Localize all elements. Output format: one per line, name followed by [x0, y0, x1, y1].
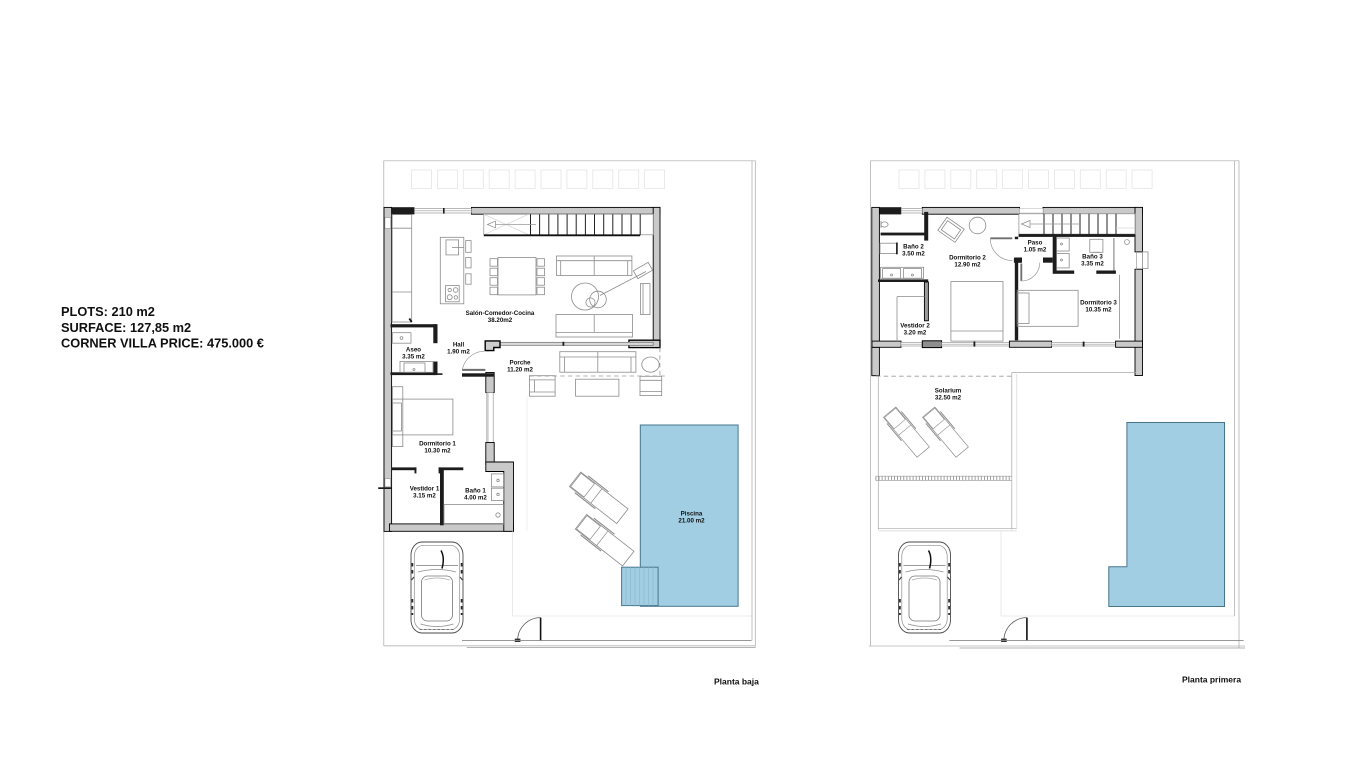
svg-text:SURFACE: 127,85 m2: SURFACE: 127,85 m2	[61, 320, 191, 335]
svg-text:Baño 3: Baño 3	[1082, 254, 1103, 261]
svg-text:Dormitorio 2: Dormitorio 2	[949, 255, 986, 262]
svg-text:3.35 m2: 3.35 m2	[402, 354, 425, 361]
svg-text:Planta baja: Planta baja	[714, 676, 759, 686]
svg-text:11.20 m2: 11.20 m2	[507, 367, 533, 374]
svg-text:1.05 m2: 1.05 m2	[1024, 247, 1047, 254]
svg-text:10.35 m2: 10.35 m2	[1085, 307, 1112, 314]
svg-text:Baño 1: Baño 1	[465, 488, 486, 495]
svg-text:3.35 m2: 3.35 m2	[1081, 261, 1104, 268]
svg-text:3.20 m2: 3.20 m2	[904, 330, 927, 337]
svg-text:12.90 m2: 12.90 m2	[954, 262, 981, 269]
svg-text:Vestidor 2: Vestidor 2	[900, 323, 930, 330]
svg-text:1.90 m2: 1.90 m2	[447, 349, 470, 356]
svg-text:38.20m2: 38.20m2	[488, 317, 513, 324]
svg-text:Solarium: Solarium	[935, 388, 962, 395]
svg-text:3.15 m2: 3.15 m2	[413, 493, 436, 500]
svg-text:Vestidor 1: Vestidor 1	[410, 486, 440, 493]
svg-text:Piscina: Piscina	[681, 511, 703, 518]
svg-text:Hall: Hall	[453, 342, 465, 349]
svg-text:Aseo: Aseo	[406, 347, 421, 354]
svg-text:Baño 2: Baño 2	[903, 244, 924, 251]
svg-text:32.50 m2: 32.50 m2	[935, 395, 962, 402]
svg-text:Dormitorio 3: Dormitorio 3	[1080, 300, 1117, 307]
svg-text:Dormitorio 1: Dormitorio 1	[419, 441, 456, 448]
svg-text:CORNER VILLA PRICE: 475.000 €: CORNER VILLA PRICE: 475.000 €	[61, 336, 264, 351]
svg-text:PLOTS: 210 m2: PLOTS: 210 m2	[61, 304, 155, 319]
svg-text:21.00 m2: 21.00 m2	[678, 518, 705, 525]
svg-text:10.30 m2: 10.30 m2	[424, 448, 451, 455]
svg-text:Salón-Comedor-Cocina: Salón-Comedor-Cocina	[466, 310, 535, 317]
svg-text:Porche: Porche	[510, 360, 532, 367]
svg-text:3.50 m2: 3.50 m2	[902, 251, 925, 258]
svg-text:Paso: Paso	[1028, 240, 1043, 247]
svg-text:4.00 m2: 4.00 m2	[464, 495, 487, 502]
svg-text:Planta primera: Planta primera	[1182, 674, 1241, 684]
